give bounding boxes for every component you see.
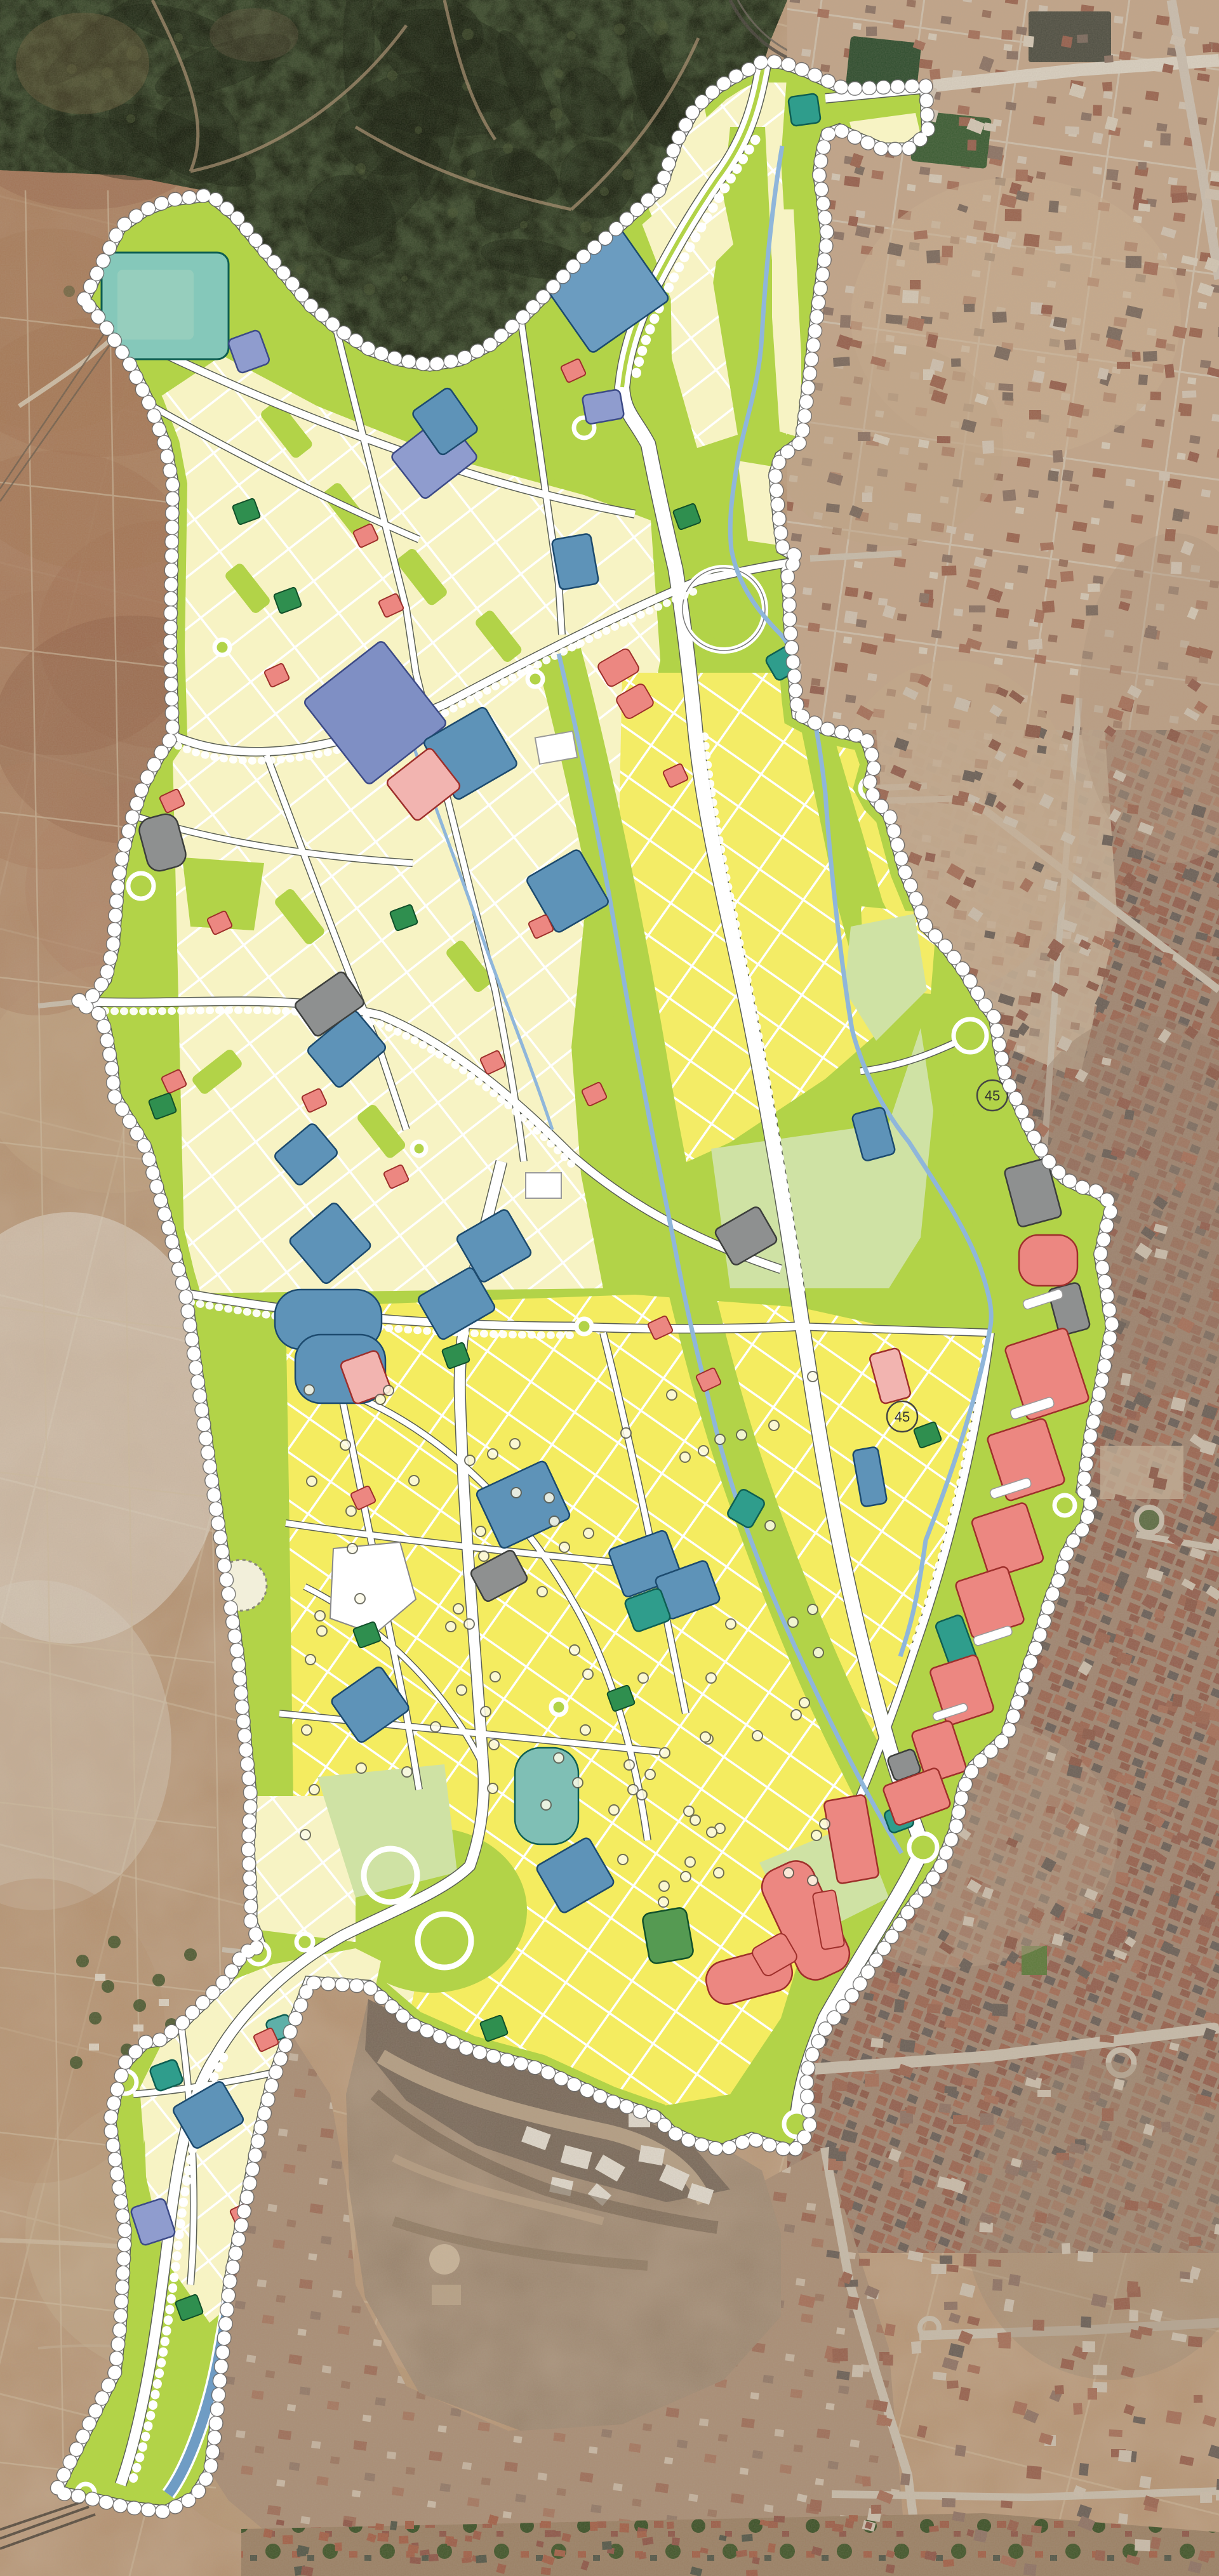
svg-text:45: 45 [985, 1088, 1000, 1104]
svg-text:45: 45 [895, 1409, 910, 1425]
